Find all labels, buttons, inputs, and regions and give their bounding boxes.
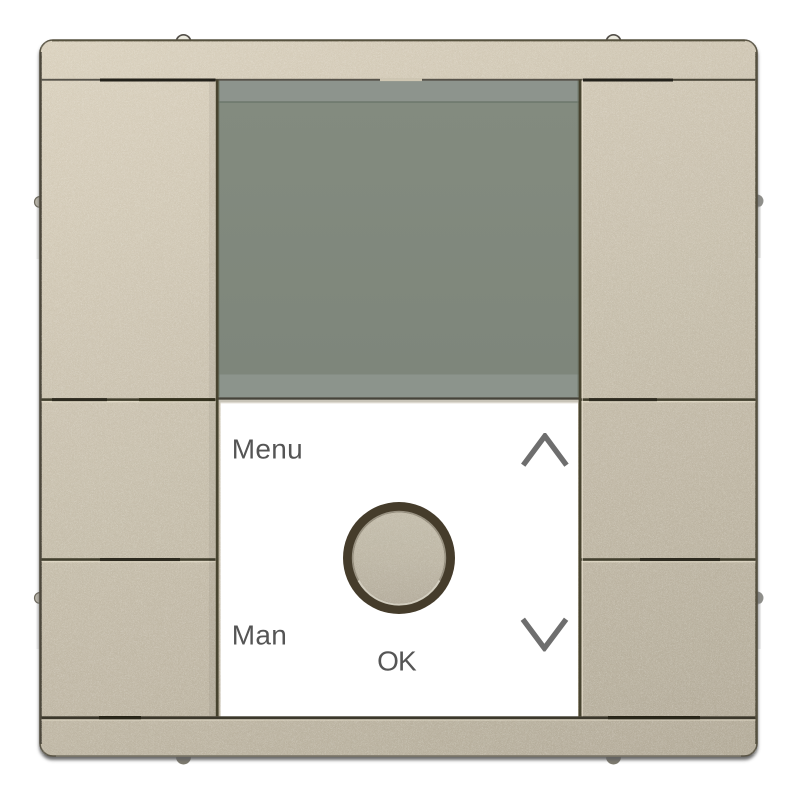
svg-text:Menu: Menu: [232, 433, 303, 464]
svg-text:Man: Man: [232, 619, 287, 650]
svg-text:OK: OK: [377, 646, 417, 677]
